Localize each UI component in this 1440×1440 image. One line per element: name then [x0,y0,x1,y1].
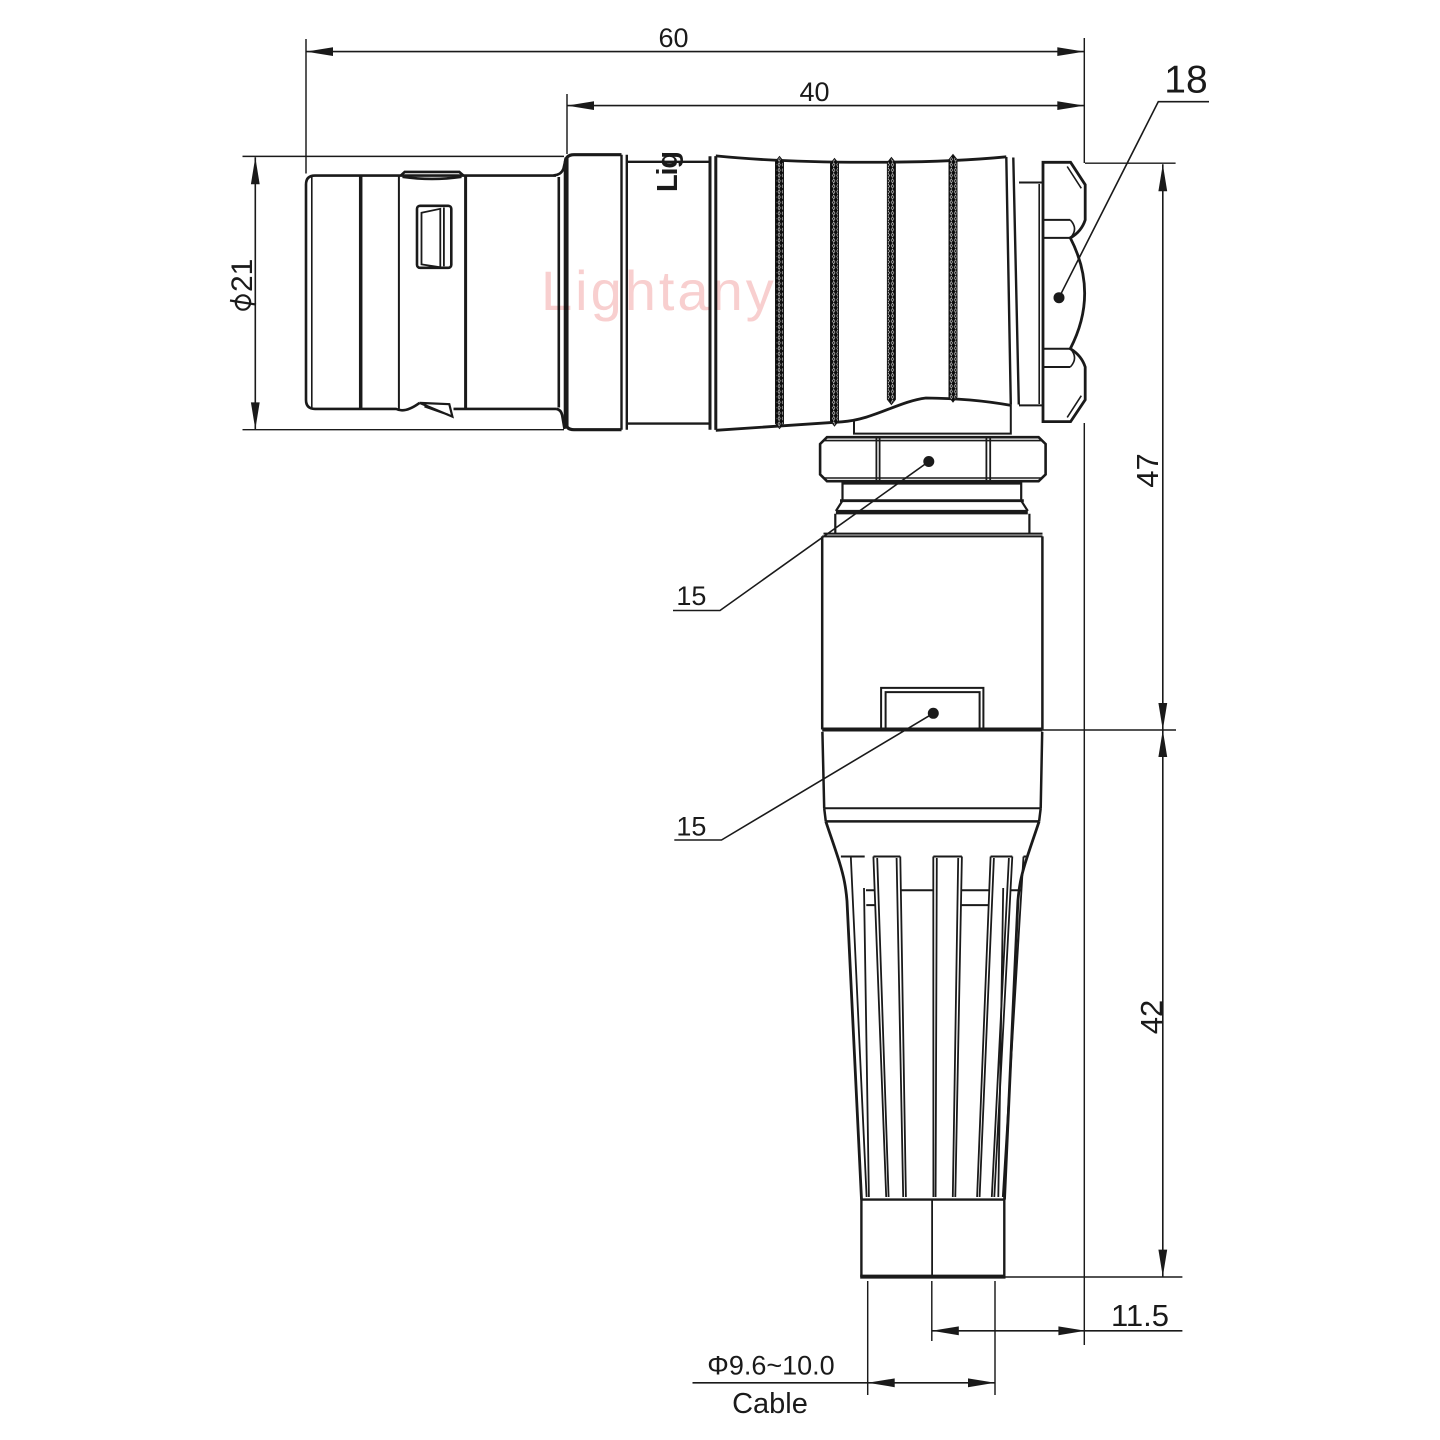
svg-text:Lig: Lig [652,152,684,192]
svg-text:47: 47 [1130,453,1165,487]
svg-text:Cable: Cable [732,1388,808,1420]
svg-text:Φ9.6~10.0: Φ9.6~10.0 [707,1351,834,1381]
svg-text:42: 42 [1134,1000,1169,1034]
svg-text:15: 15 [676,812,706,842]
svg-text:11.5: 11.5 [1111,1298,1169,1333]
svg-text:15: 15 [676,581,706,611]
svg-text:21: 21 [226,259,259,292]
svg-text:Lightany: Lightany [541,259,777,322]
svg-text:40: 40 [799,77,829,107]
svg-text:18: 18 [1164,59,1207,102]
svg-text:60: 60 [658,23,688,53]
